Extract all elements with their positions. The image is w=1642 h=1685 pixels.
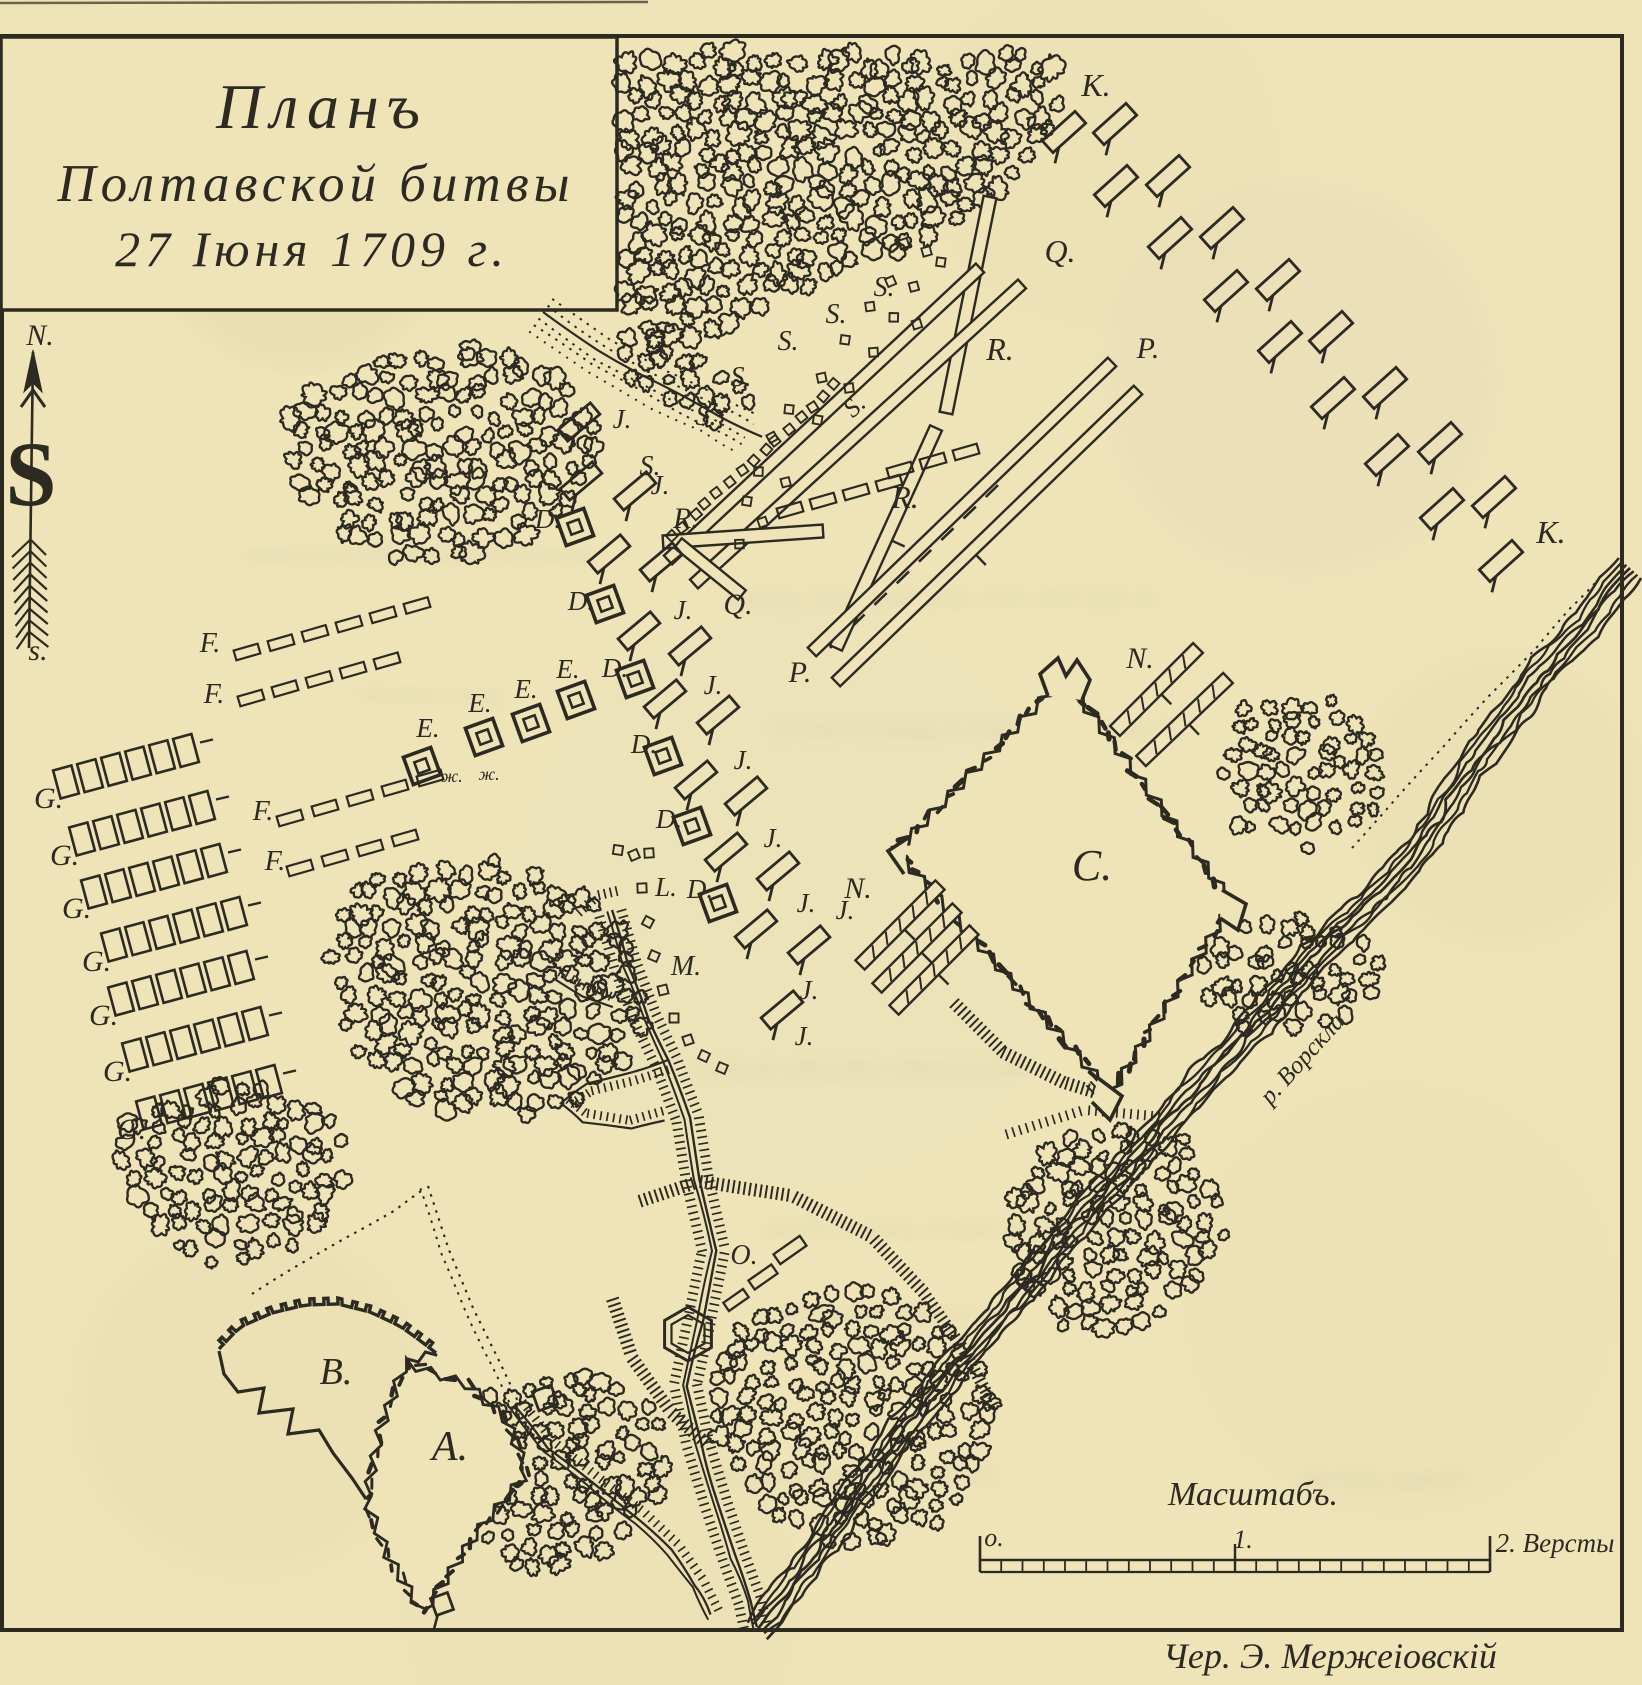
svg-text:N.: N. — [843, 872, 872, 905]
svg-text:S.: S. — [874, 272, 895, 303]
svg-text:J.: J. — [704, 670, 723, 700]
svg-text:N.: N. — [1125, 642, 1154, 675]
svg-text:Q.: Q. — [1044, 233, 1075, 269]
svg-text:Чер. Э. Мержеіовскій: Чер. Э. Мержеіовскій — [1163, 1636, 1497, 1676]
svg-text:отступленіе шведовъ на рѣку: отступленіе шведовъ на рѣку — [692, 1052, 1028, 1082]
svg-text:ж.: ж. — [478, 764, 499, 784]
svg-text:D.: D. — [567, 586, 594, 616]
svg-text:К.: К. — [1080, 67, 1110, 103]
svg-text:F.: F. — [264, 846, 286, 877]
svg-text:S: S — [5, 423, 56, 525]
svg-text:R.: R. — [890, 479, 919, 515]
svg-text:К.: К. — [1535, 514, 1565, 550]
svg-text:D.: D. — [655, 804, 682, 834]
svg-text:J.: J. — [800, 975, 819, 1005]
svg-text:Е.: Е. — [513, 674, 537, 704]
svg-text:J.: J. — [651, 470, 670, 500]
svg-text:F.: F. — [199, 628, 221, 659]
svg-text:Е.: Е. — [555, 654, 579, 684]
svg-text:2. Версты: 2. Версты — [1496, 1528, 1615, 1558]
svg-text:А.: А. — [429, 1424, 468, 1470]
svg-text:N.: N. — [25, 319, 54, 352]
svg-text:S.: S. — [826, 299, 847, 330]
svg-text:J.: J. — [795, 1021, 814, 1051]
svg-text:S.: S. — [778, 326, 799, 357]
svg-text:27 Іюня 1709 г.: 27 Іюня 1709 г. — [115, 221, 509, 277]
svg-text:J.: J. — [797, 888, 816, 918]
svg-text:o.: o. — [984, 1523, 1004, 1552]
svg-text:В.: В. — [320, 1351, 353, 1393]
svg-text:М.: М. — [670, 951, 701, 982]
svg-text:S.: S. — [731, 362, 752, 393]
svg-text:J.: J. — [674, 595, 693, 625]
svg-text:F.: F. — [203, 679, 225, 710]
svg-text:Масштабъ.: Масштабъ. — [1167, 1476, 1338, 1513]
svg-text:D.: D. — [534, 504, 561, 534]
svg-text:Е.: Е. — [415, 713, 439, 743]
svg-text:R.: R. — [985, 331, 1014, 367]
svg-text:Е.: Е. — [467, 688, 491, 718]
svg-text:S.: S. — [696, 401, 717, 432]
svg-text:Q.: Q. — [723, 588, 752, 621]
svg-text:Р.: Р. — [1136, 332, 1160, 365]
svg-text:ж.: ж. — [441, 766, 462, 786]
svg-text:Р.: Р. — [788, 656, 812, 689]
svg-text:D.: D. — [630, 729, 657, 759]
svg-text:J.: J. — [764, 823, 783, 853]
svg-text:Планъ: Планъ — [215, 71, 428, 142]
svg-text:D.: D. — [686, 874, 713, 904]
svg-text:F.: F. — [252, 796, 274, 827]
svg-text:1.: 1. — [1233, 1525, 1253, 1554]
svg-text:s.: s. — [28, 634, 47, 667]
svg-text:О.: О. — [730, 1240, 757, 1271]
svg-text:D.: D. — [601, 653, 628, 683]
svg-text:L.: L. — [654, 872, 677, 902]
svg-text:J.: J. — [613, 404, 632, 434]
svg-text:Полтавской битвы: Полтавской битвы — [56, 155, 574, 213]
svg-text:С.: С. — [1072, 841, 1112, 890]
svg-text:J.: J. — [734, 745, 753, 775]
